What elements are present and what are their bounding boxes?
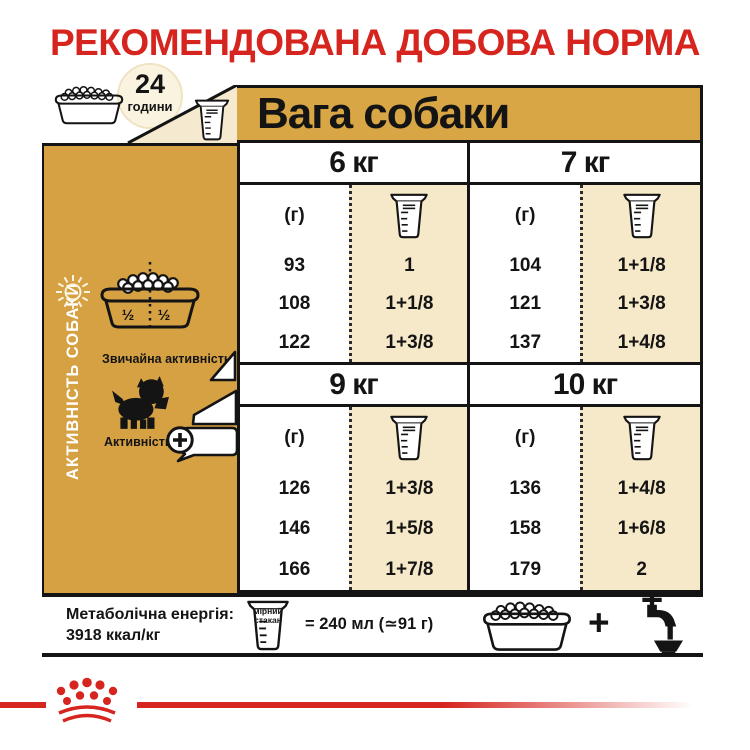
grams-value: 166	[240, 550, 349, 590]
grams-unit: (г)	[470, 407, 580, 469]
cups-value: 1+1/8	[583, 247, 700, 285]
red-rule-right	[137, 702, 693, 708]
grams-value: 122	[240, 324, 349, 362]
cups-value: 1+1/8	[352, 285, 467, 323]
page-title: РЕКОМЕНДОВАНА ДОБОВА НОРМА	[0, 22, 750, 64]
weight-label: 9 кг	[240, 365, 467, 407]
cups-value: 1+4/8	[583, 469, 700, 509]
weight-label: 6 кг	[240, 143, 467, 185]
sidebar-vertical-label: АКТИВНІСТЬ СОБАКИ	[64, 316, 83, 480]
cups-value: 1+7/8	[352, 550, 467, 590]
footer-strip: Метаболічна енергія: 3918 ккал/кг мірний…	[42, 593, 703, 657]
activity-sidebar: АКТИВНІСТЬ СОБАКИ ½ ½ Звичайна активніст…	[42, 143, 237, 593]
grams-unit: (г)	[240, 185, 349, 247]
food-bowl-icon	[470, 599, 584, 653]
section-10kg: 10 кг (г) 136 158 179 1+4/8 1+6/8 2	[470, 365, 700, 590]
measuring-cup-icon	[389, 193, 429, 239]
weight-label: 10 кг	[470, 365, 700, 407]
feeding-table: 6 кг (г) 93 108 122 1 1+1/8 1+3/8 7 кг (…	[237, 143, 703, 593]
dog-icon	[108, 374, 170, 430]
cups-value: 1+5/8	[352, 509, 467, 549]
plus-circle-icon	[165, 425, 195, 455]
grams-value: 158	[470, 509, 580, 549]
measuring-cup-icon	[194, 99, 230, 141]
cups-value: 1	[352, 247, 467, 285]
measuring-cup-icon	[622, 193, 662, 239]
measuring-cup-icon	[622, 415, 662, 461]
grams-value: 137	[470, 324, 580, 362]
measuring-cup-icon: мірний стакан	[240, 600, 296, 651]
energy-value: 3918 ккал/кг	[66, 625, 234, 646]
grams-value: 104	[470, 247, 580, 285]
half-left: ½	[122, 307, 135, 324]
section-9kg: 9 кг (г) 126 146 166 1+3/8 1+5/8 1+7/8	[240, 365, 470, 590]
grams-value: 126	[240, 469, 349, 509]
cups-value: 1+3/8	[352, 469, 467, 509]
water-tap-icon	[622, 596, 684, 656]
grams-value: 108	[240, 285, 349, 323]
grams-unit: (г)	[240, 407, 349, 469]
grams-value: 146	[240, 509, 349, 549]
weight-label: 7 кг	[470, 143, 700, 185]
cup-word2: стакан	[240, 616, 296, 625]
activity-level-triangle-large	[191, 388, 239, 427]
brand-crown-logo	[47, 676, 127, 726]
cups-value: 2	[583, 550, 700, 590]
plus-sign: +	[588, 602, 610, 644]
section-7kg: 7 кг (г) 104 121 137 1+1/8 1+3/8 1+4/8	[470, 143, 700, 365]
sun-icon	[54, 273, 92, 311]
weight-title: Вага собаки	[237, 89, 509, 139]
measuring-cup-icon	[389, 415, 429, 461]
grams-unit: (г)	[470, 185, 580, 247]
red-rule-left	[0, 702, 46, 708]
grams-value: 121	[470, 285, 580, 323]
activity-level-triangle-small	[208, 349, 238, 383]
high-activity-label: Активність	[104, 435, 173, 449]
energy-label: Метаболічна енергія:	[66, 604, 234, 625]
moon-icon	[201, 276, 229, 310]
cups-value: 1+6/8	[583, 509, 700, 549]
cups-value: 1+3/8	[583, 285, 700, 323]
weight-header-band: Вага собаки	[237, 85, 703, 143]
section-6kg: 6 кг (г) 93 108 122 1 1+1/8 1+3/8	[240, 143, 470, 365]
cups-value: 1+4/8	[583, 324, 700, 362]
grams-value: 93	[240, 247, 349, 285]
half-portions-bowl-icon: ½ ½	[94, 260, 206, 344]
metabolic-energy: Метаболічна енергія: 3918 ккал/кг	[66, 604, 234, 646]
grams-value: 136	[470, 469, 580, 509]
cups-value: 1+3/8	[352, 324, 467, 362]
half-right: ½	[158, 307, 171, 324]
cup-equivalence: = 240 мл (≃91 г)	[305, 614, 433, 634]
grams-value: 179	[470, 550, 580, 590]
